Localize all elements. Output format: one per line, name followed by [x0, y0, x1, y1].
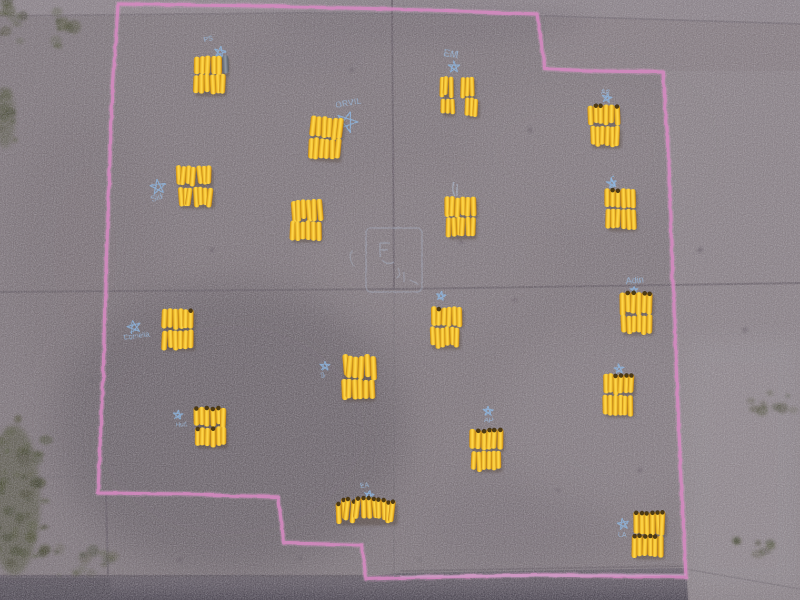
svg-text:EM: EM [443, 48, 459, 61]
svg-text:Adin: Adin [625, 274, 644, 286]
svg-text:LA: LA [618, 532, 627, 539]
svg-text:AP: AP [484, 417, 494, 425]
svg-text:EA: EA [360, 482, 370, 490]
svg-text:Hurl: Hurl [176, 422, 187, 429]
